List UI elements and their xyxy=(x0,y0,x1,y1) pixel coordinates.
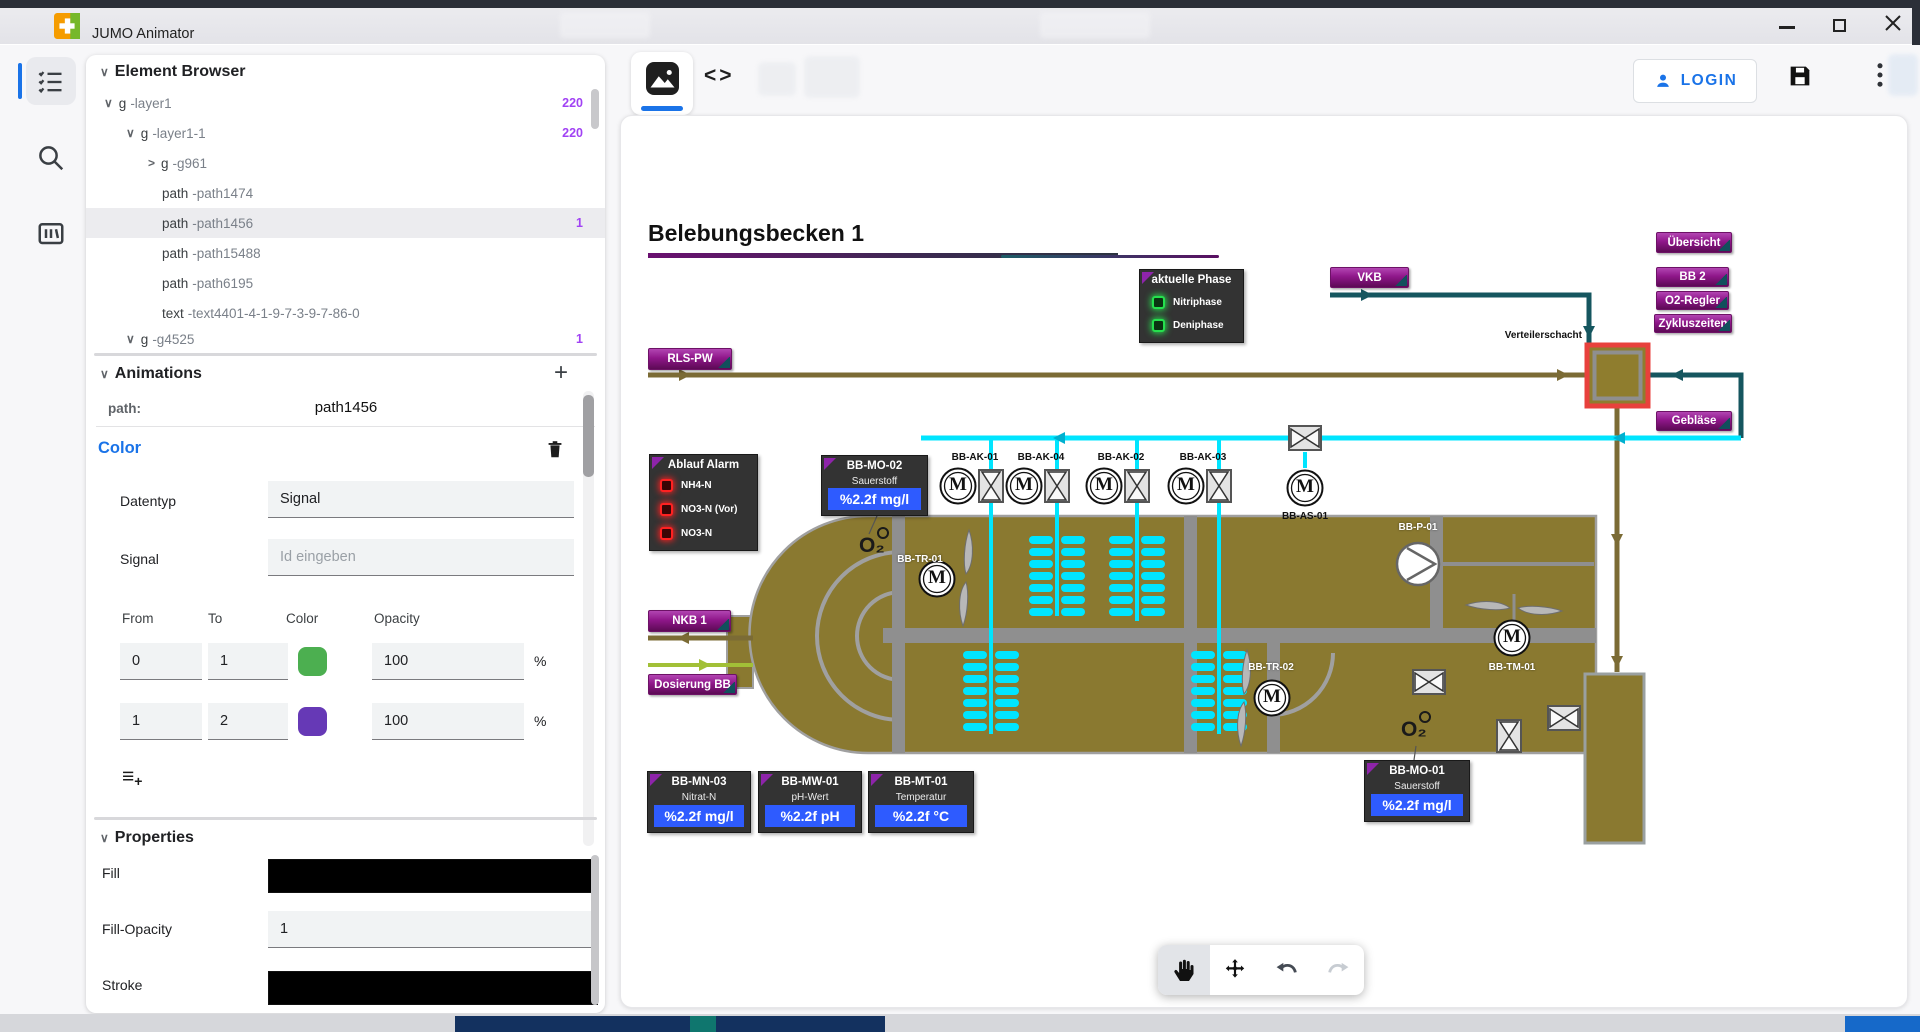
opacity-input[interactable] xyxy=(372,643,524,680)
code-view-button[interactable]: <> xyxy=(704,64,740,96)
canvas-toolbar xyxy=(1158,945,1364,995)
tree-row-selected[interactable]: path-path1456 1 xyxy=(86,208,605,238)
meter-title: BB-MT-01 xyxy=(869,772,973,788)
drawing-canvas[interactable]: Belebungsbecken 1 aktuelle Phase Nitriph… xyxy=(620,115,1908,1008)
chevron-down-icon: ∨ xyxy=(100,65,109,79)
chevron-down-icon: ∨ xyxy=(104,96,113,110)
meter-param: Nitrat-N xyxy=(648,792,750,803)
meter-bb-mo-01[interactable]: BB-MO-01 Sauerstoff %2.2f mg/l xyxy=(1364,760,1470,822)
meter-param: Sauerstoff xyxy=(1365,781,1469,792)
bb-tr-02-label: BB-TR-02 xyxy=(1237,662,1305,673)
path-value: path1456 xyxy=(226,399,466,416)
add-row-lines-icon: ≡ xyxy=(122,765,134,788)
background-strip xyxy=(0,1014,1920,1032)
move-icon xyxy=(1222,957,1248,983)
meter-value: %2.2f °C xyxy=(875,805,967,827)
meter-value: %2.2f mg/l xyxy=(828,488,921,510)
bb-tm-01-label: BB-TM-01 xyxy=(1478,662,1546,673)
stroke-label: Stroke xyxy=(102,977,142,993)
meter-bb-mw-01[interactable]: BB-MW-01 pH-Wert %2.2f pH xyxy=(758,771,862,833)
from-input[interactable] xyxy=(120,703,202,740)
nav-rls-pw[interactable]: RLS-PW xyxy=(648,348,732,370)
nav-zykluszeiten[interactable]: Zykluszeiten xyxy=(1654,314,1732,333)
bb-ak-04-label: BB-AK-04 xyxy=(1010,452,1072,463)
meter-bb-mo-02[interactable]: BB-MO-02 Sauerstoff %2.2f mg/l xyxy=(821,455,928,516)
add-row-plus-icon: + xyxy=(134,773,142,789)
search-icon[interactable] xyxy=(36,143,66,173)
chevron-down-icon: ∨ xyxy=(126,332,135,346)
meter-param: Temperatur xyxy=(869,792,973,803)
o2-sensor-icon: O₂ xyxy=(1401,718,1427,742)
undo-icon xyxy=(1274,957,1300,983)
titlebar-ghost xyxy=(560,12,650,38)
fill-color-bar[interactable] xyxy=(268,859,598,893)
meter-title: BB-MW-01 xyxy=(759,772,861,788)
from-input[interactable] xyxy=(120,643,202,680)
panel-corner-accent xyxy=(652,457,664,469)
from-header: From xyxy=(122,611,154,626)
nav-nkb1[interactable]: NKB 1 xyxy=(648,610,731,632)
panel-corner-accent xyxy=(1142,272,1154,284)
fill-opacity-input[interactable] xyxy=(268,911,598,948)
nh4n-led xyxy=(660,479,673,492)
datentyp-input[interactable] xyxy=(268,481,574,518)
chevron-right-icon: > xyxy=(148,156,155,170)
login-button[interactable]: LOGIN xyxy=(1633,59,1757,103)
library-icon[interactable] xyxy=(36,218,66,248)
toolbar-ghost xyxy=(1888,54,1918,96)
tree-row[interactable]: path-path15488 xyxy=(86,238,605,268)
signal-input[interactable] xyxy=(268,539,574,576)
element-browser-header[interactable]: ∨Element Browser xyxy=(100,63,246,81)
toolbar-ghost xyxy=(804,56,860,98)
phase-panel-title: aktuelle Phase xyxy=(1140,270,1243,286)
rail-active-indicator xyxy=(18,63,22,99)
title-underline-tail xyxy=(1001,255,1219,258)
tree-row[interactable]: ∨ g-layer1 220 xyxy=(86,88,605,118)
percent-label: % xyxy=(534,713,546,729)
led-label: Deniphase xyxy=(1173,320,1224,331)
bb-p-01-label: BB-P-01 xyxy=(1384,522,1452,533)
toolbar-ghost xyxy=(758,62,796,96)
hand-icon xyxy=(1171,957,1197,983)
user-icon xyxy=(1653,71,1673,91)
tree-row[interactable]: path-path1474 xyxy=(86,178,605,208)
signal-label: Signal xyxy=(120,551,159,567)
bb-ak-01-label: BB-AK-01 xyxy=(944,452,1006,463)
verteilerschacht-label: Verteilerschacht xyxy=(1482,330,1582,341)
animations-header[interactable]: ∨Animations xyxy=(100,365,202,383)
undo-button[interactable] xyxy=(1261,945,1313,995)
diagram-title: Belebungsbecken 1 xyxy=(648,220,864,247)
phase-panel[interactable]: aktuelle Phase Nitriphase Deniphase xyxy=(1139,269,1244,343)
divider xyxy=(96,426,595,427)
meter-value: %2.2f pH xyxy=(765,805,855,827)
pan-tool-button[interactable] xyxy=(1158,945,1210,995)
row-badge: 1 xyxy=(535,332,583,346)
opacity-header: Opacity xyxy=(374,611,420,626)
led-label: NO3-N (Vor) xyxy=(681,504,737,515)
divider xyxy=(94,817,597,820)
background-taskbar-item xyxy=(1845,1016,1920,1032)
nav-vkb[interactable]: VKB xyxy=(1330,267,1409,288)
tree-row[interactable]: > g-g961 xyxy=(86,148,605,178)
tree-row[interactable]: text-text4401-4-1-9-7-3-9-7-86-0 xyxy=(86,298,605,328)
no3n-vor-led xyxy=(660,503,673,516)
color-header: Color xyxy=(286,611,318,626)
chevron-down-icon: ∨ xyxy=(100,367,109,381)
close-button[interactable] xyxy=(1884,14,1902,32)
nitriphase-led xyxy=(1152,296,1165,309)
bb-tr-01-label: BB-TR-01 xyxy=(887,554,953,565)
chevron-down-icon: ∨ xyxy=(126,126,135,140)
fill-label: Fill xyxy=(102,865,120,881)
row-badge: 220 xyxy=(535,96,583,110)
stroke-color-bar[interactable] xyxy=(268,971,598,1005)
window-title: JUMO Animator xyxy=(92,26,194,42)
led-label: Nitriphase xyxy=(1173,297,1222,308)
to-header: To xyxy=(208,611,222,626)
to-input[interactable] xyxy=(208,643,288,680)
window-titlebar: JUMO Animator xyxy=(0,8,1920,45)
nav-dosierung-bb[interactable]: Dosierung BB xyxy=(648,674,737,695)
meter-bb-mn-03[interactable]: BB-MN-03 Nitrat-N %2.2f mg/l xyxy=(647,771,751,833)
meter-title: BB-MN-03 xyxy=(648,772,750,788)
element-browser-icon[interactable] xyxy=(37,68,65,96)
tree-row[interactable]: ∨ g-layer1-1 220 xyxy=(86,118,605,148)
nav-bb2[interactable]: BB 2 xyxy=(1656,267,1729,287)
nav-o2-regler[interactable]: O2-Regler xyxy=(1656,291,1729,310)
tree-row[interactable]: ∨ g-g4525 1 xyxy=(86,326,605,352)
move-tool-button[interactable] xyxy=(1210,945,1262,995)
meter-value: %2.2f mg/l xyxy=(1371,794,1463,816)
meter-param: Sauerstoff xyxy=(822,476,927,487)
row-badge: 1 xyxy=(535,216,583,230)
meter-title: BB-MO-01 xyxy=(1365,761,1469,777)
add-animation-button[interactable]: + xyxy=(554,359,568,387)
bb-ak-03-label: BB-AK-03 xyxy=(1172,452,1234,463)
tree-scrollbar[interactable] xyxy=(591,89,599,129)
screen-top-strip xyxy=(0,0,1920,8)
image-icon xyxy=(646,62,679,95)
datentyp-label: Datentyp xyxy=(120,493,176,509)
nav-geblaese[interactable]: Gebläse xyxy=(1656,411,1732,431)
percent-label: % xyxy=(534,653,546,669)
meter-value: %2.2f mg/l xyxy=(654,805,744,827)
nav-uebersicht[interactable]: Übersicht xyxy=(1656,232,1732,253)
tab-active-indicator xyxy=(641,106,683,111)
path-label: path: xyxy=(108,401,141,416)
animation-type-link[interactable]: Color xyxy=(98,439,141,458)
color-swatch[interactable] xyxy=(298,647,327,676)
background-window-sliver xyxy=(1912,0,1920,45)
led-label: NH4-N xyxy=(681,480,712,491)
titlebar-ghost xyxy=(1040,12,1150,38)
bb-ak-02-label: BB-AK-02 xyxy=(1090,452,1152,463)
save-icon[interactable] xyxy=(1786,62,1814,90)
to-input[interactable] xyxy=(208,703,288,740)
color-swatch[interactable] xyxy=(298,707,327,736)
no3n-led xyxy=(660,527,673,540)
divider xyxy=(94,353,597,356)
alarm-panel[interactable]: Ablauf Alarm NH4-N NO3-N (Vor) NO3-N xyxy=(649,454,758,551)
properties-header[interactable]: ∨Properties xyxy=(100,829,194,847)
minimize-button[interactable] xyxy=(1779,26,1795,29)
alarm-panel-title: Ablauf Alarm xyxy=(650,455,757,471)
redo-icon xyxy=(1325,957,1351,983)
side-panel: ∨Element Browser ∨ g-layer1 220 ∨ g-laye… xyxy=(86,55,605,1013)
maximize-button[interactable] xyxy=(1833,19,1846,32)
fill-opacity-label: Fill-Opacity xyxy=(102,921,172,937)
meter-param: pH-Wert xyxy=(759,792,861,803)
animations-scroll-thumb[interactable] xyxy=(583,395,594,477)
o2-sensor-icon: O₂ xyxy=(859,534,885,558)
redo-button[interactable] xyxy=(1313,945,1365,995)
background-taskbar-item xyxy=(690,1016,716,1032)
row-badge: 220 xyxy=(535,126,583,140)
background-taskbar xyxy=(455,1016,885,1032)
delete-animation-icon[interactable] xyxy=(544,437,566,461)
chevron-down-icon: ∨ xyxy=(100,831,109,845)
led-label: NO3-N xyxy=(681,528,712,539)
meter-title: BB-MO-02 xyxy=(822,456,927,472)
bb-as-01-label: BB-AS-01 xyxy=(1274,511,1336,522)
tree-row[interactable]: path-path6195 xyxy=(86,268,605,298)
add-row-button[interactable]: ≡+ xyxy=(122,765,142,789)
meter-bb-mt-01[interactable]: BB-MT-01 Temperatur %2.2f °C xyxy=(868,771,974,833)
opacity-input[interactable] xyxy=(372,703,524,740)
jumo-logo-icon xyxy=(54,13,80,39)
properties-scrollbar[interactable] xyxy=(591,855,599,1005)
deniphase-led xyxy=(1152,319,1165,332)
